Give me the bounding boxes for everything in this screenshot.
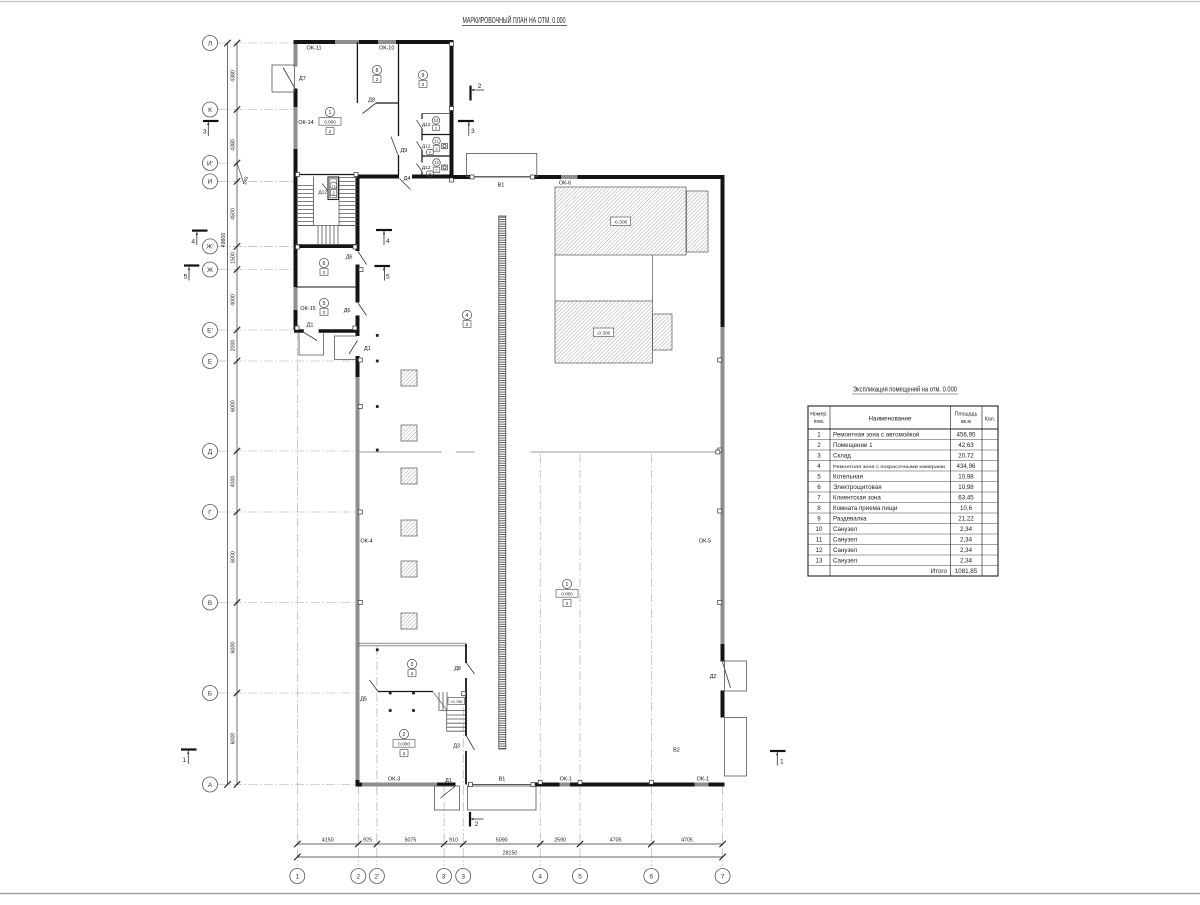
svg-text:2: 2 [329,129,332,135]
svg-text:2,34: 2,34 [960,526,973,533]
svg-text:4500: 4500 [231,208,237,220]
svg-text:+0.785: +0.785 [450,699,463,704]
svg-text:В1: В1 [499,777,506,783]
svg-text:10: 10 [816,526,823,533]
svg-text:3: 3 [411,662,414,668]
svg-text:ОК-3: ОК-3 [388,777,400,783]
svg-text:пом.: пом. [814,419,825,425]
svg-text:9: 9 [422,73,425,79]
svg-text:Д9: Д9 [401,148,408,154]
svg-text:12: 12 [434,160,439,165]
svg-text:2: 2 [323,310,326,316]
svg-text:ОК-1: ОК-1 [697,777,709,783]
svg-text:Д5: Д5 [360,697,367,703]
svg-text:-0.300: -0.300 [597,331,611,337]
svg-text:2: 2 [817,442,821,449]
svg-text:2: 2 [376,77,379,83]
svg-text:4150: 4150 [322,838,334,844]
svg-text:4705: 4705 [610,838,622,844]
svg-text:Д1: Д1 [307,323,314,329]
svg-text:10,98: 10,98 [958,474,974,481]
svg-text:ОК-6: ОК-6 [559,181,571,187]
svg-text:Кап.: Кап. [985,417,995,423]
svg-text:0.000: 0.000 [561,591,573,596]
svg-text:4380: 4380 [231,70,237,82]
svg-text:8: 8 [376,68,379,74]
svg-text:21,22: 21,22 [958,516,974,523]
svg-text:6000: 6000 [231,400,237,412]
svg-text:Помещение 1: Помещение 1 [833,442,873,449]
svg-text:Д6: Д6 [344,308,351,314]
svg-text:4000: 4000 [231,294,237,306]
svg-text:2: 2 [478,83,482,90]
svg-text:5: 5 [578,873,582,880]
svg-text:Д12: Д12 [422,165,431,171]
svg-text:А: А [208,782,213,789]
svg-text:2000: 2000 [231,340,237,352]
svg-text:10,98: 10,98 [958,484,974,491]
svg-text:6: 6 [649,873,653,880]
svg-text:Комната приема пищи: Комната приема пищи [833,505,898,512]
svg-text:11: 11 [434,139,439,144]
svg-text:-0.300: -0.300 [614,220,628,226]
svg-text:Д1: Д1 [445,778,452,784]
svg-text:Электрощитовая: Электрощитовая [833,484,882,491]
svg-text:6: 6 [817,484,821,491]
svg-text:3: 3 [817,453,821,460]
svg-text:6000: 6000 [231,733,237,745]
svg-text:28150: 28150 [503,851,518,857]
svg-text:7: 7 [721,873,725,880]
svg-text:4: 4 [191,239,195,246]
svg-text:1081,85: 1081,85 [955,568,978,575]
svg-text:2590: 2590 [554,838,566,844]
svg-text:4: 4 [538,873,542,880]
svg-text:Итого: Итого [931,568,948,575]
svg-text:Д4: Д4 [404,176,411,182]
svg-text:6: 6 [323,261,326,267]
svg-text:ОК-14: ОК-14 [298,120,313,126]
svg-text:1: 1 [329,110,332,116]
svg-text:12: 12 [816,547,823,554]
svg-text:Д8: Д8 [368,98,375,104]
svg-text:2: 2 [435,167,437,172]
svg-text:кв.м: кв.м [961,419,971,425]
svg-text:Д12: Д12 [422,144,431,150]
svg-text:4000: 4000 [231,476,237,488]
svg-text:Клиентская зона: Клиентская зона [833,495,881,502]
svg-text:ОК-10: ОК-10 [379,46,394,52]
svg-text:6000: 6000 [231,642,237,654]
svg-text:3’: 3’ [442,873,448,880]
svg-text:3: 3 [203,129,207,136]
svg-text:Раздевалка: Раздевалка [833,516,867,523]
svg-text:10,6: 10,6 [960,505,973,512]
svg-text:Наименование: Наименование [869,416,912,423]
svg-text:2: 2 [422,82,425,88]
svg-text:Д6: Д6 [346,255,353,261]
svg-text:0.000: 0.000 [324,119,336,124]
svg-text:Д3: Д3 [453,744,460,750]
svg-text:5: 5 [323,301,326,307]
svg-text:Д: Д [208,448,213,455]
svg-text:ОК-15: ОК-15 [300,306,315,312]
svg-text:0.000: 0.000 [398,741,410,746]
svg-text:Д12: Д12 [422,122,431,128]
svg-text:К: К [208,107,212,114]
svg-text:Санузел: Санузел [833,558,857,565]
svg-text:5: 5 [817,474,821,481]
svg-text:1: 1 [295,873,299,880]
svg-text:2: 2 [466,322,469,328]
svg-text:4705: 4705 [681,838,693,844]
svg-text:ОК-5: ОК-5 [699,539,711,545]
svg-text:Д2: Д2 [710,674,717,680]
svg-text:И’: И’ [207,160,214,167]
svg-text:3: 3 [461,873,465,880]
svg-text:4: 4 [386,238,390,245]
svg-text:42,63: 42,63 [958,442,974,449]
svg-text:2: 2 [566,601,569,607]
svg-text:6000: 6000 [231,551,237,563]
svg-text:В1: В1 [498,183,505,189]
svg-text:Б: Б [208,690,212,697]
svg-text:1: 1 [566,582,569,588]
svg-text:910: 910 [449,838,458,844]
svg-text:МАРКИРОВОЧНЫЙ ПЛАН НА ОТМ. 0.0: МАРКИРОВОЧНЫЙ ПЛАН НА ОТМ. 0.000 [463,16,566,25]
svg-text:2: 2 [403,732,406,738]
svg-text:В2: В2 [673,748,680,754]
svg-text:20,72: 20,72 [958,453,974,460]
svg-text:Санузел: Санузел [833,547,857,554]
svg-text:5090: 5090 [496,838,508,844]
svg-text:Г: Г [208,509,212,516]
svg-text:Котельная: Котельная [833,474,863,481]
svg-text:63,45: 63,45 [958,495,974,502]
svg-text:Е’: Е’ [207,327,213,334]
svg-text:7: 7 [817,495,821,502]
svg-text:8: 8 [817,505,821,512]
svg-text:5: 5 [184,274,188,281]
svg-text:1: 1 [817,432,821,439]
svg-text:4: 4 [817,463,821,470]
svg-text:2: 2 [356,873,360,880]
svg-text:13: 13 [816,558,823,565]
svg-text:5075: 5075 [405,838,417,844]
svg-text:Д8: Д8 [454,666,461,672]
svg-text:ОК-4: ОК-4 [360,539,372,545]
svg-text:Ремонтная зона с автомойкой: Ремонтная зона с автомойкой [833,432,920,439]
svg-text:Площадь: Площадь [955,412,978,418]
svg-text:4380: 4380 [231,139,237,151]
svg-text:2,34: 2,34 [960,547,973,554]
svg-text:2,34: 2,34 [960,537,973,544]
svg-text:3: 3 [471,128,475,135]
svg-text:Д12: Д12 [318,190,327,196]
svg-text:Е: Е [208,358,213,365]
svg-text:2: 2 [411,671,414,677]
svg-text:Ремонтная зона с покрасочными: Ремонтная зона с покрасочными камерами [833,464,946,469]
svg-text:Л: Л [208,40,212,47]
svg-text:Д7: Д7 [299,76,306,82]
svg-text:11: 11 [816,537,823,544]
svg-text:Номер.: Номер. [810,412,827,418]
svg-text:2: 2 [403,751,406,757]
svg-text:В: В [208,600,212,607]
svg-text:ОК-1: ОК-1 [560,777,572,783]
svg-text:Ж’: Ж’ [206,244,214,251]
svg-text:Ж: Ж [207,267,213,274]
svg-text:1500: 1500 [231,252,237,264]
svg-text:13: 13 [332,184,336,188]
svg-text:Санузел: Санузел [833,526,857,533]
svg-text:2’: 2’ [374,873,380,880]
svg-text:5: 5 [386,274,390,281]
svg-text:2: 2 [323,270,326,276]
svg-text:9: 9 [817,516,821,523]
svg-text:10: 10 [434,118,439,123]
svg-text:434,96: 434,96 [957,463,976,470]
svg-text:1: 1 [780,759,784,766]
svg-text:ОК-11: ОК-11 [306,46,321,52]
svg-text:925: 925 [363,838,372,844]
svg-text:2: 2 [435,125,437,130]
svg-text:Д1: Д1 [364,346,371,352]
svg-text:И: И [208,179,213,186]
svg-text:2: 2 [475,821,479,828]
svg-text:2: 2 [435,146,437,151]
svg-text:2,34: 2,34 [960,558,973,565]
svg-text:4: 4 [466,313,469,319]
svg-text:49800: 49800 [221,233,227,248]
svg-text:1: 1 [182,757,186,764]
svg-text:Санузел: Санузел [833,537,857,544]
svg-text:456,95: 456,95 [957,432,976,439]
svg-text:Склад: Склад [833,453,851,460]
svg-text:Экспликация помещений на отм.: Экспликация помещений на отм. 0.000 [853,386,957,394]
